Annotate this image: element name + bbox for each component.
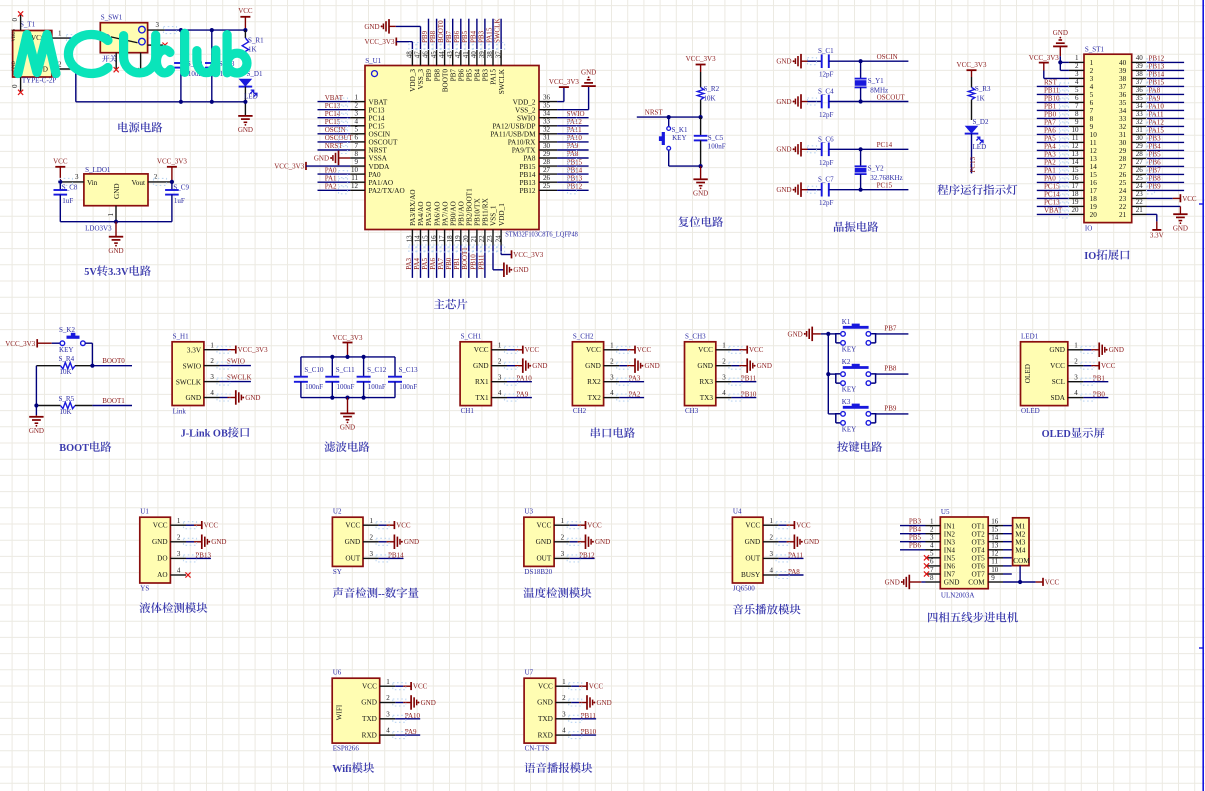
svg-text:PB11: PB11 bbox=[741, 373, 757, 382]
svg-text:44: 44 bbox=[438, 51, 446, 58]
svg-text:U6: U6 bbox=[333, 669, 342, 677]
svg-text:1: 1 bbox=[930, 517, 934, 525]
svg-text:11: 11 bbox=[1072, 134, 1079, 142]
svg-text:S_U1: S_U1 bbox=[365, 57, 381, 65]
svg-text:PC14: PC14 bbox=[877, 140, 893, 149]
svg-text:GND: GND bbox=[788, 329, 804, 338]
svg-text:1: 1 bbox=[386, 678, 390, 686]
svg-text:YS: YS bbox=[140, 584, 149, 592]
svg-text:IO: IO bbox=[1084, 251, 1096, 262]
svg-text:13: 13 bbox=[405, 235, 413, 242]
svg-text:PB9: PB9 bbox=[884, 403, 896, 412]
svg-text:10: 10 bbox=[351, 166, 358, 174]
svg-text:4: 4 bbox=[562, 727, 566, 735]
svg-text:GND: GND bbox=[536, 537, 552, 546]
svg-text:12pF: 12pF bbox=[819, 111, 833, 119]
svg-text:STM32F103C8T6_LQFP48: STM32F103C8T6_LQFP48 bbox=[505, 231, 578, 238]
svg-text:1: 1 bbox=[722, 341, 726, 349]
svg-text:3: 3 bbox=[610, 373, 614, 381]
svg-text:4: 4 bbox=[177, 566, 181, 574]
svg-text:16: 16 bbox=[430, 235, 438, 242]
svg-text:1: 1 bbox=[561, 517, 565, 525]
svg-text:VCC_3V3: VCC_3V3 bbox=[365, 37, 395, 46]
svg-text:9: 9 bbox=[1075, 118, 1079, 126]
svg-text:1: 1 bbox=[1075, 54, 1079, 62]
svg-text:S_C13: S_C13 bbox=[399, 366, 418, 374]
svg-text:GND: GND bbox=[211, 537, 227, 546]
svg-text:SWCLK: SWCLK bbox=[176, 377, 202, 386]
svg-text:PA2: PA2 bbox=[325, 181, 337, 190]
svg-text:30: 30 bbox=[1136, 134, 1143, 142]
svg-text:TX1: TX1 bbox=[475, 393, 489, 402]
svg-text:PB14: PB14 bbox=[388, 550, 404, 559]
svg-text:35: 35 bbox=[543, 101, 550, 109]
svg-text:5: 5 bbox=[930, 549, 934, 557]
svg-text:3: 3 bbox=[1074, 373, 1078, 381]
svg-text:VCC_3V3: VCC_3V3 bbox=[238, 345, 268, 354]
svg-text:PB10: PB10 bbox=[581, 727, 597, 736]
svg-text:PA8: PA8 bbox=[788, 567, 800, 576]
svg-text:PA9: PA9 bbox=[405, 727, 417, 736]
svg-text:9: 9 bbox=[354, 158, 358, 166]
svg-text:U4: U4 bbox=[733, 508, 742, 516]
svg-text:4: 4 bbox=[498, 389, 502, 397]
svg-text:24: 24 bbox=[494, 235, 502, 242]
svg-text:2: 2 bbox=[386, 694, 390, 702]
svg-text:1: 1 bbox=[498, 341, 502, 349]
svg-text:17: 17 bbox=[438, 235, 446, 242]
svg-text:S_C10: S_C10 bbox=[304, 366, 323, 374]
svg-text:6: 6 bbox=[354, 134, 358, 142]
svg-text:GND: GND bbox=[361, 698, 377, 707]
svg-text:S_R5: S_R5 bbox=[59, 395, 75, 403]
svg-text:3: 3 bbox=[561, 550, 565, 558]
svg-text:KEY: KEY bbox=[59, 346, 74, 354]
svg-text:KEY: KEY bbox=[842, 345, 857, 353]
svg-text:VCC_3V3: VCC_3V3 bbox=[957, 60, 987, 69]
svg-text:10K: 10K bbox=[704, 94, 717, 102]
svg-text:3: 3 bbox=[562, 710, 566, 718]
svg-text:4: 4 bbox=[1075, 78, 1079, 86]
svg-text:VCC: VCC bbox=[698, 345, 713, 354]
svg-text:DO: DO bbox=[157, 553, 168, 562]
svg-text:GND: GND bbox=[532, 361, 548, 370]
svg-text:43: 43 bbox=[446, 51, 454, 58]
svg-text:RX3: RX3 bbox=[699, 377, 713, 386]
svg-text:40: 40 bbox=[1136, 54, 1143, 62]
svg-text:TX2: TX2 bbox=[588, 393, 602, 402]
svg-text:S_Y2: S_Y2 bbox=[868, 164, 884, 172]
svg-text:23: 23 bbox=[1136, 190, 1143, 198]
svg-text:OUT: OUT bbox=[745, 553, 760, 562]
svg-text:GND: GND bbox=[885, 577, 901, 586]
svg-text:SWIO: SWIO bbox=[227, 356, 246, 365]
svg-text:RX1: RX1 bbox=[475, 377, 489, 386]
svg-text:LED1: LED1 bbox=[1021, 332, 1039, 340]
svg-text:41: 41 bbox=[462, 51, 470, 58]
svg-text:3: 3 bbox=[75, 173, 79, 181]
svg-text:4: 4 bbox=[722, 389, 726, 397]
svg-text:13: 13 bbox=[991, 541, 998, 549]
svg-text:13: 13 bbox=[1071, 150, 1078, 158]
svg-text:S_C1: S_C1 bbox=[818, 47, 834, 55]
svg-text:LED: LED bbox=[973, 143, 987, 151]
svg-text:VCC: VCC bbox=[637, 345, 651, 354]
svg-text:GND: GND bbox=[29, 426, 45, 435]
svg-text:46: 46 bbox=[422, 51, 430, 58]
svg-text:GND: GND bbox=[245, 393, 261, 402]
svg-text:OLED: OLED bbox=[1021, 407, 1040, 415]
svg-text:1: 1 bbox=[1074, 341, 1078, 349]
svg-text:BOOT0: BOOT0 bbox=[102, 356, 125, 365]
svg-text:2: 2 bbox=[722, 357, 726, 365]
svg-text:42: 42 bbox=[454, 51, 462, 58]
svg-text:47: 47 bbox=[414, 51, 422, 58]
svg-text:2: 2 bbox=[562, 694, 566, 702]
svg-text:18: 18 bbox=[1071, 190, 1078, 198]
svg-text:3: 3 bbox=[177, 550, 181, 558]
svg-text:4: 4 bbox=[930, 541, 934, 549]
svg-text:39: 39 bbox=[478, 51, 486, 58]
svg-text:GND: GND bbox=[745, 537, 761, 546]
svg-text:GND: GND bbox=[776, 144, 792, 153]
svg-text:JQ6500: JQ6500 bbox=[733, 584, 755, 592]
svg-text:IO: IO bbox=[1085, 224, 1092, 232]
svg-text:K2: K2 bbox=[842, 358, 851, 366]
svg-text:VCC_3V3: VCC_3V3 bbox=[513, 250, 543, 259]
svg-text:ESP8266: ESP8266 bbox=[333, 745, 360, 753]
svg-text:14: 14 bbox=[414, 235, 422, 242]
svg-text:2: 2 bbox=[354, 101, 358, 109]
svg-text:VCC: VCC bbox=[345, 520, 360, 529]
svg-text:1: 1 bbox=[210, 341, 214, 349]
svg-text:WIFI: WIFI bbox=[335, 704, 344, 720]
svg-text:CN-TTS: CN-TTS bbox=[525, 745, 550, 753]
svg-text:NRST: NRST bbox=[645, 107, 663, 116]
svg-text:PC15: PC15 bbox=[877, 180, 893, 189]
svg-text:22: 22 bbox=[1136, 198, 1143, 206]
svg-text:11: 11 bbox=[991, 558, 998, 566]
svg-text:9: 9 bbox=[991, 574, 995, 582]
svg-text:29: 29 bbox=[543, 150, 550, 158]
svg-text:S_R1: S_R1 bbox=[248, 36, 264, 44]
svg-text:AO: AO bbox=[157, 570, 168, 579]
svg-text:S_CH2: S_CH2 bbox=[573, 332, 594, 340]
svg-text:34: 34 bbox=[543, 109, 550, 117]
svg-text:10: 10 bbox=[991, 566, 998, 574]
svg-text:29: 29 bbox=[1136, 142, 1143, 150]
svg-text:7: 7 bbox=[930, 566, 934, 574]
svg-text:VDD_1: VDD_1 bbox=[497, 203, 506, 226]
svg-text:18: 18 bbox=[446, 235, 454, 242]
svg-text:1: 1 bbox=[107, 213, 115, 217]
svg-text:GND: GND bbox=[340, 422, 356, 431]
svg-text:S_Y1: S_Y1 bbox=[868, 77, 884, 85]
svg-text:VCC: VCC bbox=[745, 520, 760, 529]
svg-text:PB6: PB6 bbox=[909, 540, 921, 549]
svg-text:VCC: VCC bbox=[238, 6, 252, 15]
svg-text:31: 31 bbox=[1136, 126, 1143, 134]
svg-text:GND: GND bbox=[185, 393, 201, 402]
svg-text:PA10: PA10 bbox=[516, 373, 532, 382]
svg-text:S_K2: S_K2 bbox=[59, 326, 75, 334]
svg-text:VCC_3V3: VCC_3V3 bbox=[333, 332, 363, 341]
svg-text:3: 3 bbox=[354, 109, 358, 117]
svg-text:4: 4 bbox=[610, 389, 614, 397]
svg-text:GND: GND bbox=[697, 361, 713, 370]
svg-text:VCC: VCC bbox=[1045, 577, 1059, 586]
svg-text:TXD: TXD bbox=[538, 714, 553, 723]
svg-text:3: 3 bbox=[930, 533, 934, 541]
svg-text:S_SW1: S_SW1 bbox=[101, 13, 123, 21]
svg-text:11: 11 bbox=[351, 174, 358, 182]
svg-text:6: 6 bbox=[930, 558, 934, 566]
svg-text:8: 8 bbox=[930, 574, 934, 582]
svg-text:K3: K3 bbox=[842, 398, 851, 406]
svg-text:25: 25 bbox=[1136, 174, 1143, 182]
svg-text:12: 12 bbox=[991, 549, 998, 557]
svg-text:S_C5: S_C5 bbox=[708, 134, 724, 142]
svg-text:37: 37 bbox=[1136, 78, 1143, 86]
svg-text:Wifi: Wifi bbox=[332, 764, 351, 775]
svg-text:100nF: 100nF bbox=[708, 142, 726, 150]
svg-text:VCC: VCC bbox=[1101, 361, 1115, 370]
svg-text:39: 39 bbox=[1136, 62, 1143, 70]
svg-text:S_D2: S_D2 bbox=[973, 118, 989, 126]
svg-text:36: 36 bbox=[543, 93, 550, 101]
svg-text:GND: GND bbox=[108, 246, 124, 255]
svg-text:VCC: VCC bbox=[362, 681, 377, 690]
svg-text:3: 3 bbox=[156, 21, 160, 29]
svg-text:7: 7 bbox=[1075, 102, 1079, 110]
svg-text:Vout: Vout bbox=[132, 178, 146, 187]
svg-text:S_K1: S_K1 bbox=[672, 126, 688, 134]
svg-text:3: 3 bbox=[770, 550, 774, 558]
svg-text:VCC: VCC bbox=[749, 345, 763, 354]
svg-text:OLED: OLED bbox=[1023, 363, 1032, 383]
svg-text:31: 31 bbox=[543, 134, 550, 142]
svg-text:PC13: PC13 bbox=[968, 157, 977, 173]
svg-text:4: 4 bbox=[1074, 389, 1078, 397]
svg-text:GND: GND bbox=[314, 153, 330, 162]
svg-text:S_C8: S_C8 bbox=[62, 183, 78, 191]
svg-text:24: 24 bbox=[1136, 182, 1143, 190]
svg-text:GND: GND bbox=[537, 698, 553, 707]
svg-text:S_CH3: S_CH3 bbox=[685, 332, 706, 340]
svg-text:VCC: VCC bbox=[586, 345, 601, 354]
svg-text:GND: GND bbox=[152, 537, 168, 546]
svg-text:LED: LED bbox=[244, 92, 258, 100]
svg-text:2: 2 bbox=[610, 357, 614, 365]
svg-text:J-Link OB: J-Link OB bbox=[181, 429, 228, 440]
svg-text:GND: GND bbox=[757, 361, 773, 370]
svg-text:GND: GND bbox=[597, 698, 613, 707]
svg-text:TYPE-C-2P: TYPE-C-2P bbox=[22, 76, 56, 84]
svg-text:21: 21 bbox=[1136, 206, 1143, 214]
svg-text:6: 6 bbox=[1075, 94, 1079, 102]
svg-text:LDO3V3: LDO3V3 bbox=[85, 224, 112, 232]
svg-text:PB10: PB10 bbox=[741, 389, 757, 398]
svg-text:38: 38 bbox=[1136, 70, 1143, 78]
svg-text:U7: U7 bbox=[525, 669, 534, 677]
svg-text:PB11: PB11 bbox=[476, 254, 485, 270]
svg-text:GND: GND bbox=[364, 21, 380, 30]
svg-text:VCC_3V3: VCC_3V3 bbox=[5, 339, 35, 348]
svg-text:3: 3 bbox=[498, 373, 502, 381]
svg-text:M4: M4 bbox=[1015, 545, 1025, 554]
svg-text:1: 1 bbox=[177, 517, 181, 525]
svg-text:GND: GND bbox=[473, 361, 489, 370]
svg-text:2: 2 bbox=[1074, 357, 1078, 365]
svg-text:21: 21 bbox=[1119, 210, 1127, 219]
svg-text:RX2: RX2 bbox=[587, 377, 601, 386]
svg-text:38: 38 bbox=[486, 51, 494, 58]
svg-text:1: 1 bbox=[770, 517, 774, 525]
svg-text:3: 3 bbox=[1075, 70, 1079, 78]
svg-text:1: 1 bbox=[370, 517, 374, 525]
svg-text:4: 4 bbox=[770, 566, 774, 574]
svg-text:1: 1 bbox=[562, 678, 566, 686]
svg-text:BUSY: BUSY bbox=[741, 570, 761, 579]
svg-text:100nF: 100nF bbox=[337, 383, 355, 391]
svg-text:NRST: NRST bbox=[325, 141, 343, 150]
svg-text:15: 15 bbox=[422, 235, 430, 242]
svg-text:0: 0 bbox=[11, 84, 19, 88]
svg-text:S_LDO1: S_LDO1 bbox=[85, 166, 111, 174]
svg-text:S_T1: S_T1 bbox=[20, 20, 36, 28]
svg-text:COM: COM bbox=[968, 578, 985, 587]
svg-text:10: 10 bbox=[1071, 126, 1078, 134]
svg-text:VCC: VCC bbox=[525, 345, 539, 354]
svg-text:VCC: VCC bbox=[589, 681, 603, 690]
svg-text:SY: SY bbox=[333, 568, 343, 576]
svg-text:GND: GND bbox=[513, 265, 529, 274]
svg-text:GND: GND bbox=[776, 97, 792, 106]
svg-text:1uF: 1uF bbox=[62, 197, 73, 205]
svg-text:GND: GND bbox=[581, 67, 597, 76]
svg-text:20: 20 bbox=[462, 235, 470, 242]
svg-text:VCC: VCC bbox=[153, 520, 168, 529]
svg-text:VBUS: VBUS bbox=[12, 29, 17, 42]
svg-text:3.3V: 3.3V bbox=[187, 345, 202, 354]
svg-text:12: 12 bbox=[351, 182, 358, 190]
svg-text:GND: GND bbox=[776, 185, 792, 194]
svg-text:S_ST1: S_ST1 bbox=[1085, 45, 1104, 53]
svg-text:34: 34 bbox=[1136, 102, 1143, 110]
svg-text:S_C12: S_C12 bbox=[367, 366, 386, 374]
svg-text:15: 15 bbox=[991, 525, 998, 533]
svg-text:GND: GND bbox=[112, 183, 121, 199]
svg-text:GND: GND bbox=[421, 698, 437, 707]
svg-text:22: 22 bbox=[478, 235, 486, 242]
svg-text:GND: GND bbox=[693, 188, 709, 197]
svg-text:S_R4: S_R4 bbox=[59, 355, 75, 363]
svg-text:PA2: PA2 bbox=[629, 389, 641, 398]
svg-text:PB13: PB13 bbox=[195, 550, 211, 559]
svg-text:U5: U5 bbox=[941, 508, 950, 516]
svg-text:36: 36 bbox=[1136, 86, 1143, 94]
svg-text:VCC: VCC bbox=[536, 520, 551, 529]
svg-text:S_CH1: S_CH1 bbox=[461, 332, 482, 340]
svg-text:3.3V: 3.3V bbox=[1150, 230, 1164, 239]
svg-text:GND: GND bbox=[1053, 27, 1069, 36]
svg-text:4: 4 bbox=[354, 117, 358, 125]
svg-text:12: 12 bbox=[1071, 142, 1078, 150]
svg-text:3: 3 bbox=[386, 710, 390, 718]
svg-text:VCC_3V3: VCC_3V3 bbox=[157, 156, 187, 165]
svg-text:GND: GND bbox=[595, 537, 611, 546]
svg-text:VCC: VCC bbox=[204, 520, 218, 529]
svg-text:SWIO: SWIO bbox=[183, 361, 202, 370]
svg-text:VCC: VCC bbox=[474, 345, 489, 354]
svg-text:100nF: 100nF bbox=[305, 383, 323, 391]
svg-text:OUT: OUT bbox=[345, 553, 360, 562]
svg-text:19: 19 bbox=[454, 235, 462, 242]
svg-text:PA10: PA10 bbox=[405, 710, 421, 719]
svg-text:S_C9: S_C9 bbox=[173, 183, 189, 191]
svg-text:PB12: PB12 bbox=[579, 550, 595, 559]
svg-text:GND: GND bbox=[776, 56, 792, 65]
svg-text:GND: GND bbox=[238, 125, 254, 134]
svg-text:S_H1: S_H1 bbox=[173, 332, 189, 340]
svg-text:OSCIN: OSCIN bbox=[877, 52, 899, 61]
svg-text:25: 25 bbox=[543, 182, 550, 190]
svg-text:30: 30 bbox=[543, 142, 550, 150]
svg-text:48: 48 bbox=[405, 51, 413, 58]
svg-text:VCC: VCC bbox=[396, 520, 410, 529]
svg-text:SCL: SCL bbox=[1052, 377, 1066, 386]
svg-text:28: 28 bbox=[543, 158, 550, 166]
svg-text:BOOT1: BOOT1 bbox=[102, 396, 125, 405]
svg-text:7: 7 bbox=[354, 142, 358, 150]
svg-text:32: 32 bbox=[1136, 118, 1143, 126]
svg-text:CH1: CH1 bbox=[461, 407, 475, 415]
svg-text:0: 0 bbox=[11, 18, 19, 22]
svg-text:VCC: VCC bbox=[1050, 361, 1065, 370]
svg-text:35: 35 bbox=[1136, 94, 1143, 102]
svg-text:TXD: TXD bbox=[362, 714, 377, 723]
svg-text:S_R3: S_R3 bbox=[975, 85, 991, 93]
svg-text:10K: 10K bbox=[60, 368, 73, 376]
svg-text:CH2: CH2 bbox=[573, 407, 587, 415]
svg-text:U1: U1 bbox=[140, 508, 149, 516]
svg-text:KEY: KEY bbox=[842, 425, 857, 433]
svg-text:DS18B20: DS18B20 bbox=[524, 568, 552, 576]
svg-text:GND: GND bbox=[804, 537, 820, 546]
svg-text:PB8: PB8 bbox=[884, 363, 896, 372]
svg-text:37: 37 bbox=[494, 51, 502, 58]
svg-text:17: 17 bbox=[1071, 182, 1078, 190]
svg-text:27: 27 bbox=[543, 166, 550, 174]
svg-text:12pF: 12pF bbox=[819, 199, 833, 207]
svg-text:PA9: PA9 bbox=[516, 389, 528, 398]
svg-text:PB1: PB1 bbox=[1093, 373, 1105, 382]
svg-text:1: 1 bbox=[354, 93, 358, 101]
svg-text:PB0: PB0 bbox=[1093, 389, 1105, 398]
svg-text:SWCLK: SWCLK bbox=[492, 18, 501, 43]
svg-text:GND: GND bbox=[645, 361, 661, 370]
svg-text:KEY: KEY bbox=[672, 134, 687, 142]
svg-text:CH3: CH3 bbox=[685, 407, 699, 415]
svg-text:1: 1 bbox=[58, 29, 62, 37]
svg-text:28: 28 bbox=[1136, 150, 1143, 158]
svg-text:RXD: RXD bbox=[538, 730, 554, 739]
svg-text:2: 2 bbox=[154, 173, 158, 181]
svg-text:VCC: VCC bbox=[538, 681, 553, 690]
svg-text:VCC: VCC bbox=[1182, 193, 1196, 202]
svg-text:33: 33 bbox=[1136, 110, 1143, 118]
svg-text:2: 2 bbox=[561, 533, 565, 541]
